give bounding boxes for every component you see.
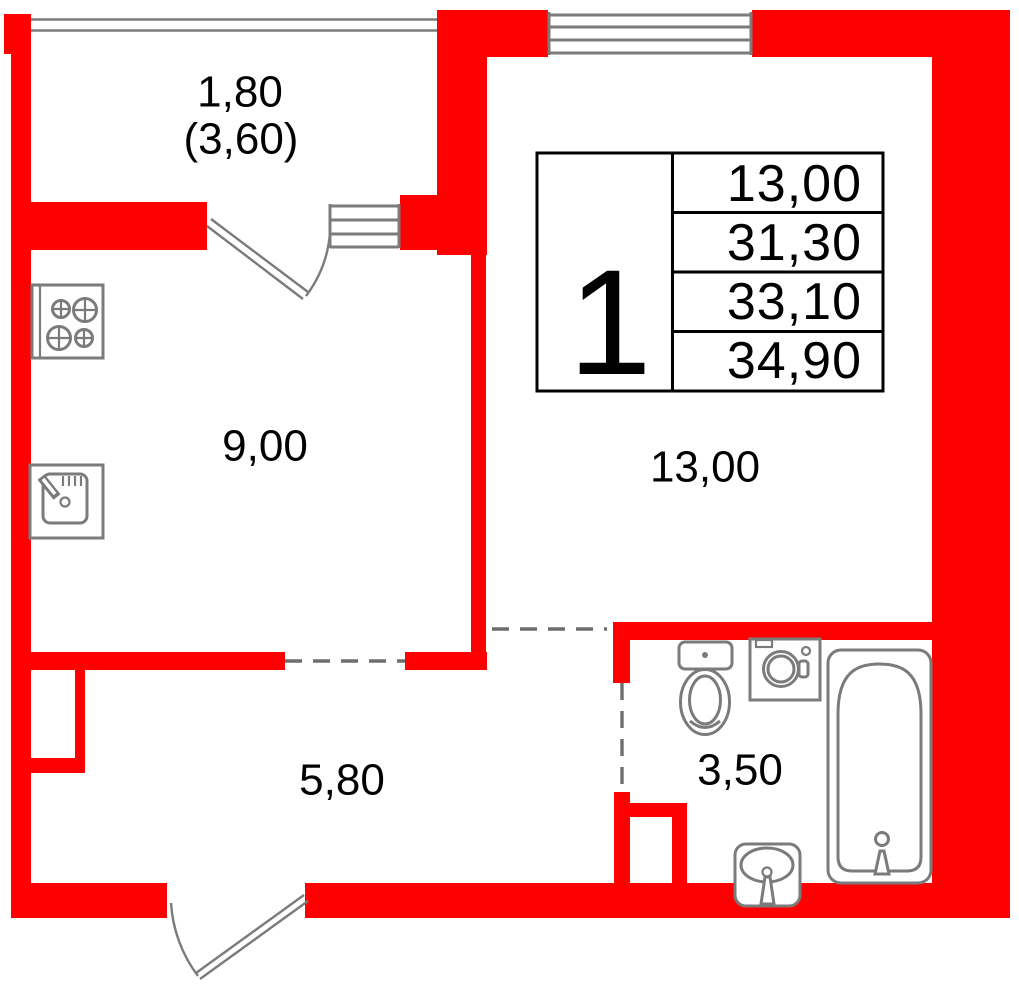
washing-machine-icon — [750, 639, 820, 700]
unit-area-row: 13,00 — [727, 155, 862, 213]
unit-number: 1 — [568, 238, 651, 406]
kitchen-balcony-window — [330, 204, 399, 248]
wall-kitchen-living-divider — [471, 250, 486, 670]
wall-kitchen-bottom-right — [405, 652, 487, 670]
unit-area-row: 34,90 — [727, 332, 862, 390]
wall-bathroom-top — [613, 622, 940, 640]
washbasin-icon — [735, 844, 800, 906]
balcony-area-label: 1,80 — [197, 68, 283, 117]
balcony-door-icon — [207, 219, 330, 299]
doors — [171, 219, 330, 979]
wall-bathroom-left-upper — [613, 622, 630, 683]
balcony-glazing — [31, 20, 437, 31]
entrance-door-icon — [171, 895, 308, 979]
wall-outer-bottom-left — [11, 883, 167, 918]
wall-balcony-bottom — [11, 202, 207, 250]
wall-hall-niche-bottom — [31, 758, 85, 773]
hallway-area-label: 5,80 — [299, 756, 385, 805]
floor-plan-page: 1 13,00 31,30 33,10 34,90 1,80 (3,60) 9,… — [0, 0, 1019, 1003]
wall-bathroom-door-jamb-top — [630, 803, 687, 817]
wall-bathroom-left-lower — [614, 792, 630, 883]
kitchen-area-label: 9,00 — [222, 422, 308, 471]
bathtub-icon — [828, 650, 931, 883]
kitchen-sink-icon — [30, 465, 103, 538]
floor-plan: 1 13,00 31,30 33,10 34,90 1,80 (3,60) 9,… — [0, 0, 1019, 1003]
unit-info-table: 1 13,00 31,30 33,10 34,90 — [537, 153, 883, 406]
wall-outer-bottom-right — [305, 883, 1010, 918]
stove-icon — [32, 285, 103, 358]
living-room-area-label: 13,00 — [650, 443, 760, 492]
toilet-icon — [679, 642, 732, 735]
wall-hall-niche-side — [75, 670, 85, 773]
wall-outer-left — [11, 14, 31, 917]
wall-outer-right — [932, 10, 1010, 918]
unit-area-row: 31,30 — [727, 214, 862, 272]
wall-outer-top-left — [437, 10, 548, 57]
balcony-reduced-area-label: (3,60) — [184, 115, 299, 164]
unit-area-row: 33,10 — [727, 273, 862, 331]
living-room-window — [549, 12, 751, 55]
wall-bathroom-door-jamb-side — [672, 817, 687, 883]
bathroom-area-label: 3,50 — [697, 746, 783, 795]
wall-kitchen-bottom-left — [11, 652, 285, 670]
